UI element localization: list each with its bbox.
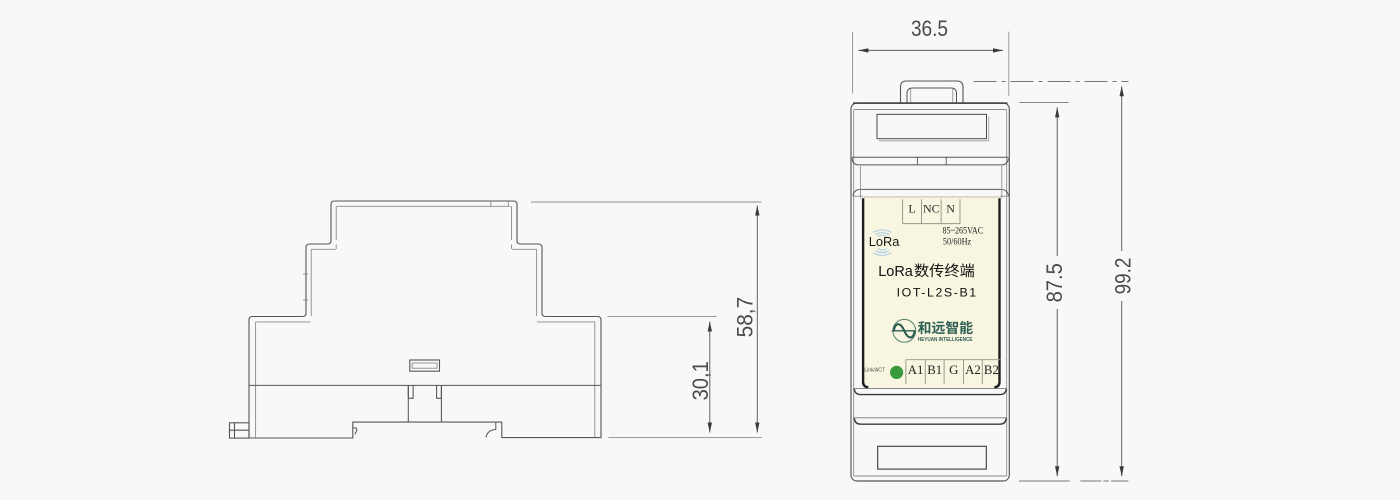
- svg-text:99.2: 99.2: [1110, 258, 1135, 295]
- svg-text:B2: B2: [984, 363, 999, 377]
- svg-text:85~265VAC: 85~265VAC: [943, 225, 984, 235]
- svg-text:58,7: 58,7: [732, 297, 757, 338]
- svg-text:LoRa: LoRa: [878, 264, 914, 280]
- svg-text:A1: A1: [908, 363, 924, 377]
- svg-text:LoRa: LoRa: [869, 234, 900, 249]
- svg-text:Link/ACT: Link/ACT: [864, 367, 885, 373]
- svg-text:36.5: 36.5: [911, 16, 948, 41]
- svg-text:B1: B1: [927, 363, 942, 377]
- svg-text:NC: NC: [923, 202, 940, 216]
- svg-text:G: G: [949, 363, 958, 377]
- svg-text:L: L: [908, 202, 915, 216]
- svg-text:IOT-L2S-B1: IOT-L2S-B1: [897, 285, 977, 299]
- svg-text:HEYUAN INTELLIGENCE: HEYUAN INTELLIGENCE: [918, 337, 973, 343]
- svg-text:N: N: [946, 202, 955, 216]
- svg-text:30,1: 30,1: [688, 361, 713, 400]
- svg-text:A2: A2: [965, 363, 981, 377]
- svg-text:87.5: 87.5: [1042, 263, 1067, 302]
- svg-text:50/60Hz: 50/60Hz: [943, 237, 971, 247]
